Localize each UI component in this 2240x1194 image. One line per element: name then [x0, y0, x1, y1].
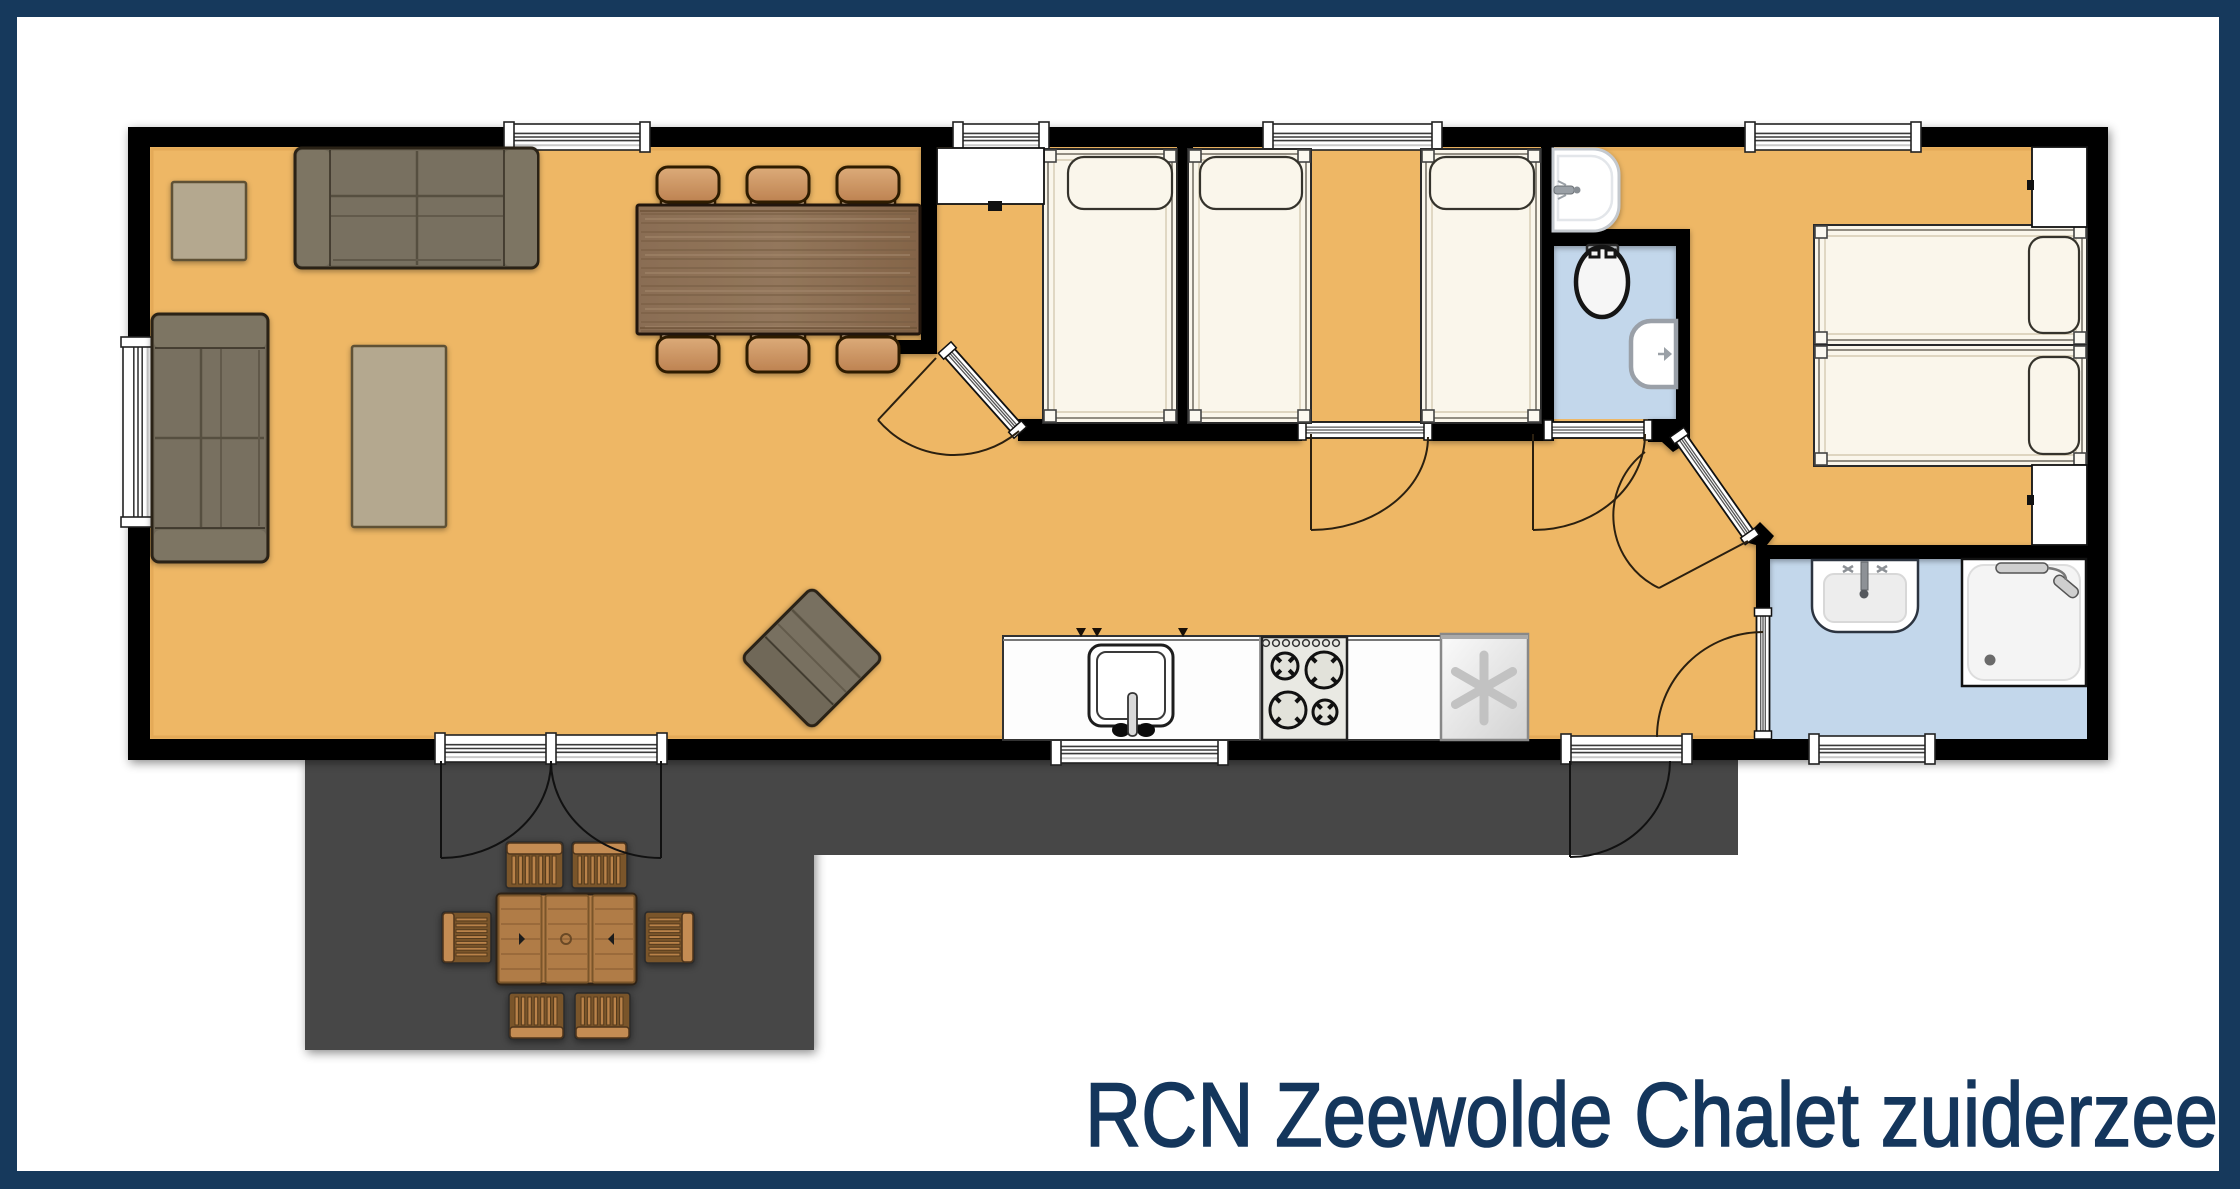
svg-text:RCN Zeewolde Chalet zuiderzee: RCN Zeewolde Chalet zuiderzee: [1085, 1065, 2218, 1166]
